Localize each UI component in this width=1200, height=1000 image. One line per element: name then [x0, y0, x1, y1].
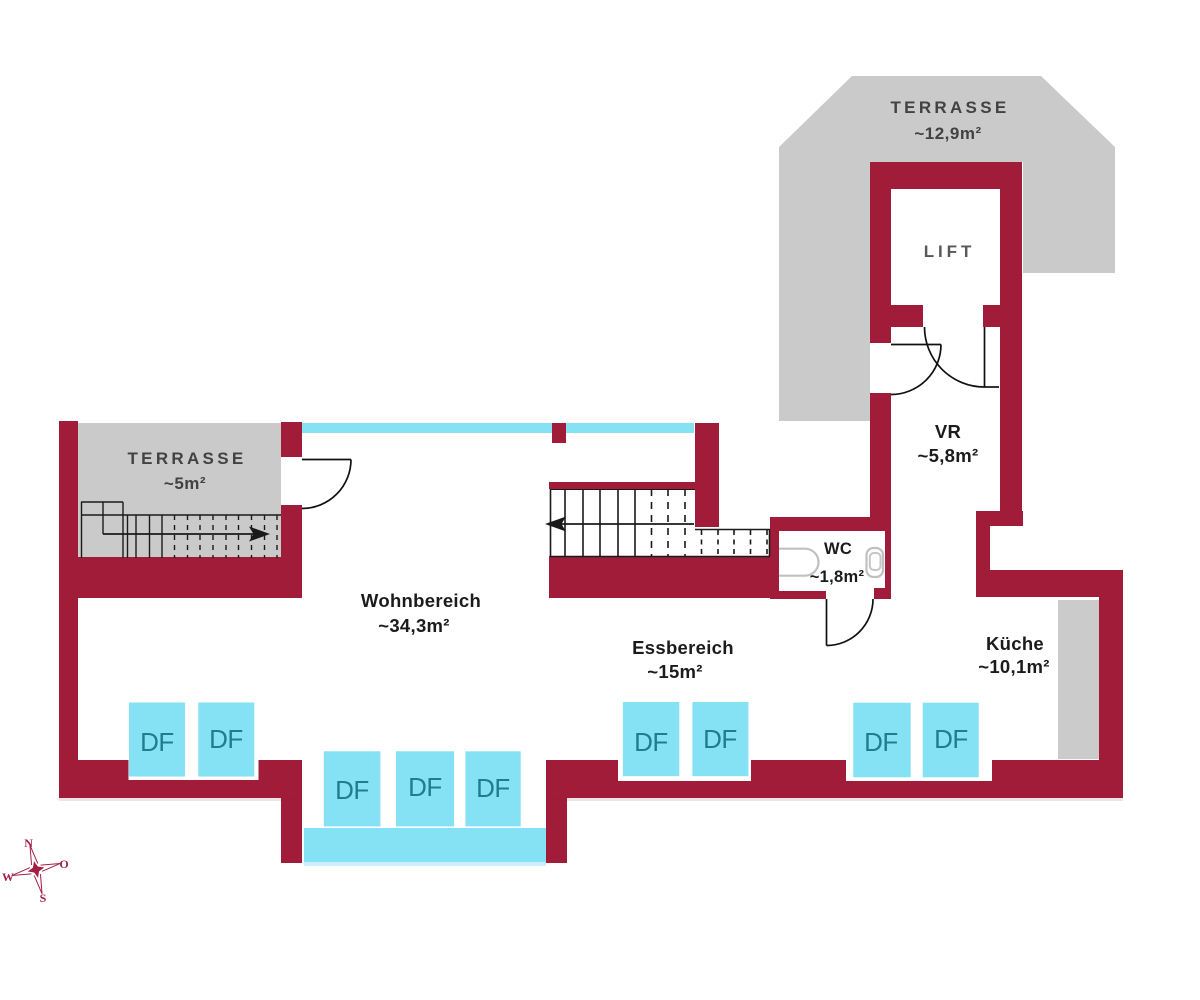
- svg-text:VR: VR: [935, 421, 961, 442]
- svg-text:~12,9m²: ~12,9m²: [914, 124, 981, 143]
- svg-text:Essbereich: Essbereich: [632, 637, 734, 658]
- svg-text:~15m²: ~15m²: [647, 661, 703, 682]
- svg-text:DF: DF: [140, 727, 174, 757]
- svg-text:DF: DF: [408, 772, 442, 802]
- svg-text:Wohnbereich: Wohnbereich: [361, 590, 481, 611]
- svg-text:~5m²: ~5m²: [164, 474, 206, 493]
- svg-text:~10,1m²: ~10,1m²: [978, 656, 1050, 677]
- svg-text:TERRASSE: TERRASSE: [891, 98, 1010, 117]
- svg-text:N: N: [24, 836, 33, 850]
- svg-text:LIFT: LIFT: [924, 242, 975, 261]
- svg-text:DF: DF: [476, 773, 510, 803]
- svg-text:~1,8m²: ~1,8m²: [810, 568, 865, 586]
- svg-text:~5,8m²: ~5,8m²: [918, 445, 979, 466]
- svg-text:WC: WC: [824, 540, 852, 558]
- svg-text:DF: DF: [934, 724, 968, 754]
- svg-text:DF: DF: [864, 727, 898, 757]
- svg-text:~34,3m²: ~34,3m²: [378, 615, 450, 636]
- svg-text:O: O: [59, 857, 68, 871]
- svg-text:DF: DF: [209, 724, 243, 754]
- svg-text:DF: DF: [703, 724, 737, 754]
- svg-text:Küche: Küche: [986, 633, 1044, 654]
- svg-text:DF: DF: [335, 775, 369, 805]
- svg-text:DF: DF: [634, 727, 668, 757]
- svg-text:TERRASSE: TERRASSE: [128, 449, 247, 468]
- svg-text:W: W: [2, 870, 14, 884]
- svg-text:S: S: [40, 891, 47, 905]
